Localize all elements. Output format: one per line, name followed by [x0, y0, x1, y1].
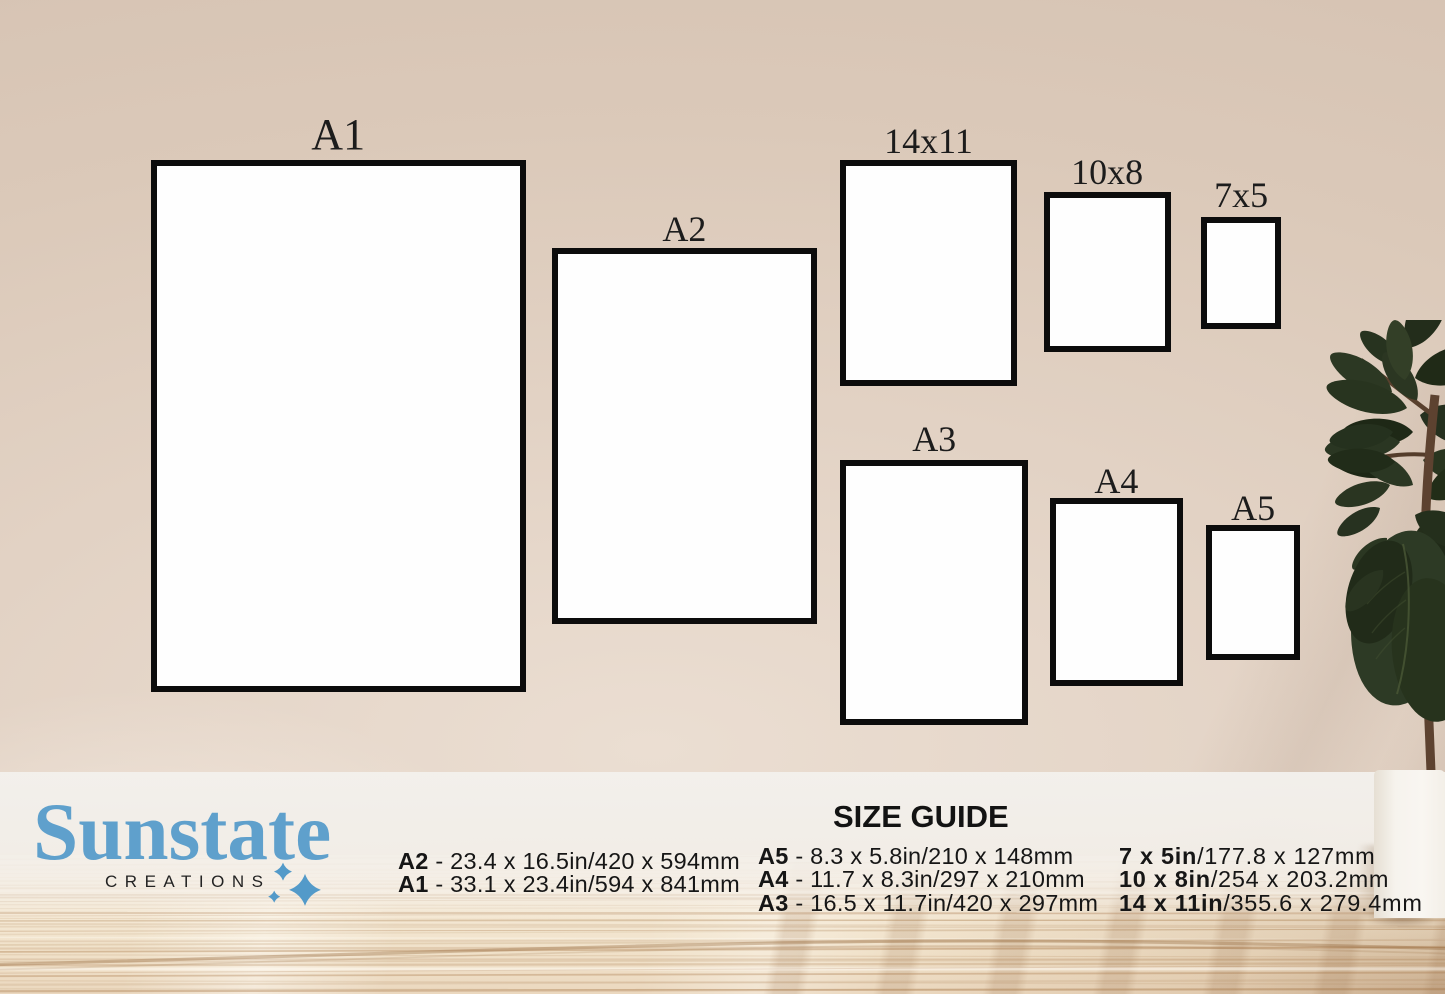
svg-text:CREATIONS: CREATIONS	[105, 872, 263, 891]
